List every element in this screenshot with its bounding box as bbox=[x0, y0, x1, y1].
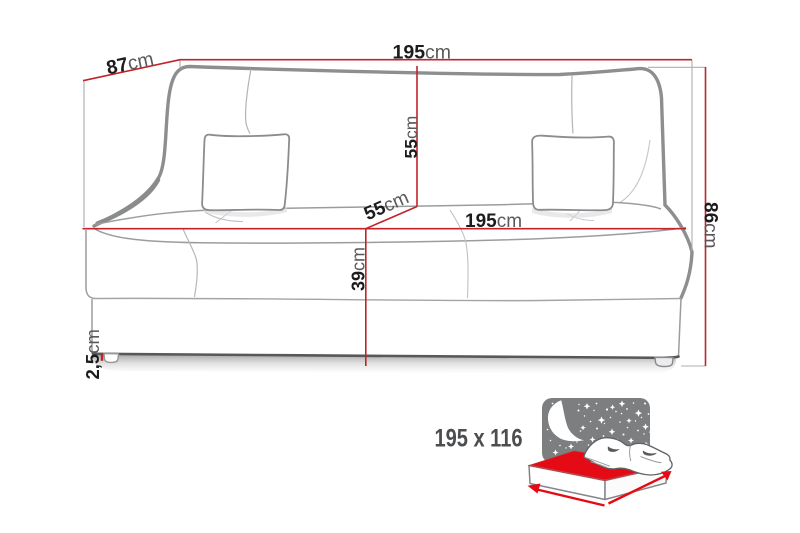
svg-text:55cm: 55cm bbox=[401, 116, 421, 159]
svg-text:2,5cm: 2,5cm bbox=[82, 329, 103, 379]
svg-text:195cm: 195cm bbox=[465, 211, 522, 232]
svg-text:39cm: 39cm bbox=[349, 247, 369, 291]
svg-text:86cm: 86cm bbox=[700, 202, 721, 248]
svg-text:195cm: 195cm bbox=[393, 42, 452, 64]
svg-text:195 x 116: 195 x 116 bbox=[435, 425, 523, 453]
